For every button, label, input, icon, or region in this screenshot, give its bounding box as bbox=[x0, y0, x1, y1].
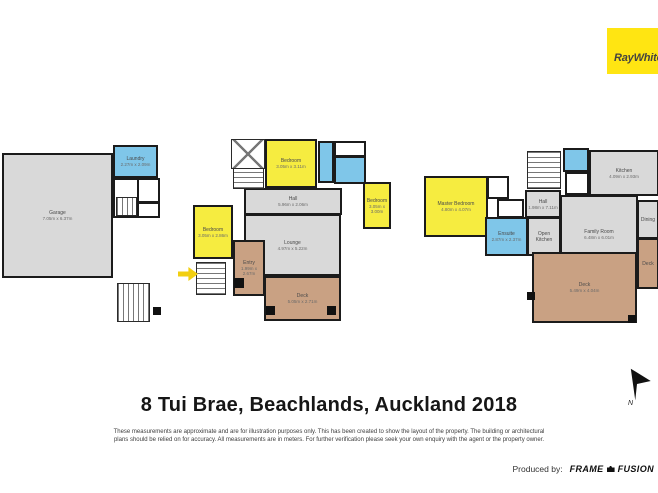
staircase bbox=[117, 283, 150, 322]
deck-post bbox=[628, 315, 636, 323]
staircase bbox=[116, 197, 137, 216]
framefusion-word-fusion: FUSION bbox=[618, 464, 654, 474]
deck-post bbox=[234, 278, 244, 288]
deck-post bbox=[153, 307, 161, 315]
deck-room: Deck5.49m x 4.04m bbox=[532, 252, 637, 323]
open-kitchen-room: Open Kitchen bbox=[527, 217, 561, 256]
staircase bbox=[527, 151, 561, 189]
floorplan-canvas: Garage7.05m x 6.37mLaundry2.27m x 2.09mB… bbox=[0, 0, 658, 493]
framefusion-logo: FRAME FUSION bbox=[570, 464, 654, 474]
kitchen-room: Kitchen4.09m x 2.93m bbox=[589, 150, 658, 196]
room bbox=[487, 176, 509, 199]
garage-room: Garage7.05m x 6.37m bbox=[2, 153, 113, 278]
ensuite-room: Ensuite2.87m x 2.37m bbox=[485, 217, 528, 256]
room bbox=[334, 156, 366, 184]
footer: Produced by: FRAME FUSION bbox=[513, 464, 655, 474]
disclaimer-line-1: These measurements are approximate and a… bbox=[0, 429, 658, 437]
disclaimer-line-2: plans should be relied on for accuracy. … bbox=[0, 437, 658, 445]
disclaimer-text: These measurements are approximate and a… bbox=[0, 429, 658, 444]
bedroom-room: Bedroom3.05m x 3.11m bbox=[265, 139, 317, 188]
hall-room: Hall5.96m x 2.06m bbox=[244, 188, 342, 215]
staircase bbox=[231, 139, 265, 169]
staircase bbox=[196, 262, 226, 295]
room bbox=[334, 141, 366, 157]
produced-by-label: Produced by: bbox=[513, 464, 563, 474]
framefusion-word-frame: FRAME bbox=[570, 464, 604, 474]
deck-room: Deck bbox=[637, 238, 658, 289]
page-title: 8 Tui Brae, Beachlands, Auckland 2018 bbox=[0, 394, 658, 417]
room bbox=[318, 141, 334, 183]
room bbox=[137, 202, 160, 218]
camera-icon bbox=[607, 466, 615, 472]
entry-arrow-icon bbox=[178, 267, 198, 281]
master-bedroom-room: Master Bedroom4.80m x 4.07m bbox=[424, 176, 488, 237]
room bbox=[563, 148, 589, 172]
bedroom-room: Bedroom3.05m x 2.86m bbox=[193, 205, 233, 259]
room bbox=[497, 199, 524, 218]
bedroom-room: Bedroom3.05m x 3.00m bbox=[363, 182, 391, 229]
deck-post bbox=[266, 306, 275, 315]
room bbox=[565, 172, 589, 195]
laundry-room: Laundry2.27m x 2.09m bbox=[113, 145, 158, 178]
hall-room: Hall1.98m x 7.11m bbox=[525, 190, 561, 218]
staircase bbox=[233, 168, 264, 189]
deck-post bbox=[327, 306, 336, 315]
flyer-page: RayWhite. Garage7.05m x 6.37mLaundry2.27… bbox=[0, 0, 658, 493]
room bbox=[137, 178, 160, 203]
dining-room: Dining bbox=[637, 200, 658, 239]
deck-post bbox=[527, 292, 535, 300]
